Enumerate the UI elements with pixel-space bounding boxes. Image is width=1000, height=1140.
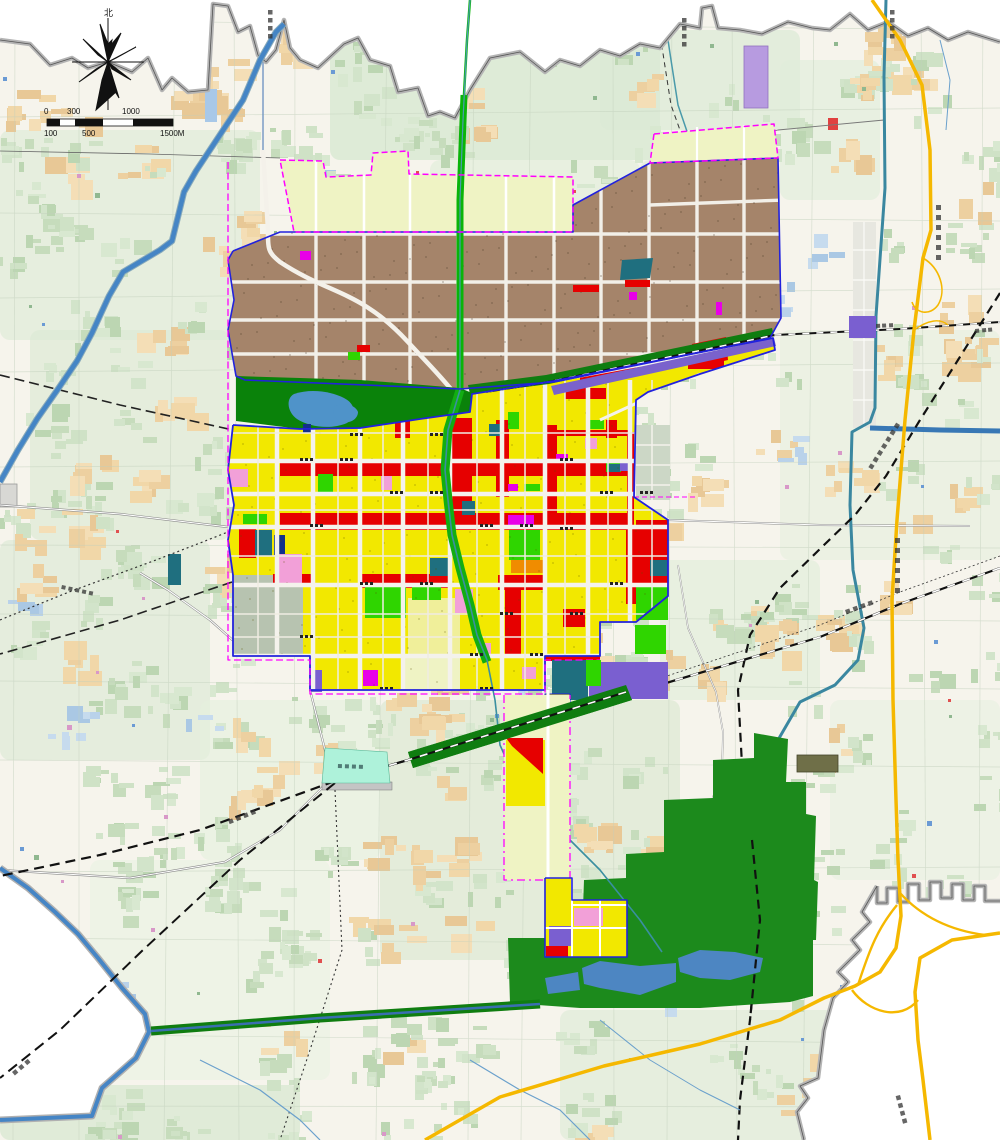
- svg-text:300: 300: [67, 107, 81, 116]
- svg-text:1000: 1000: [122, 107, 140, 116]
- svg-text:1500M: 1500M: [160, 129, 185, 138]
- svg-text:100: 100: [44, 129, 58, 138]
- svg-text:500: 500: [82, 129, 96, 138]
- svg-text:北: 北: [104, 8, 113, 18]
- svg-text:0: 0: [44, 107, 49, 116]
